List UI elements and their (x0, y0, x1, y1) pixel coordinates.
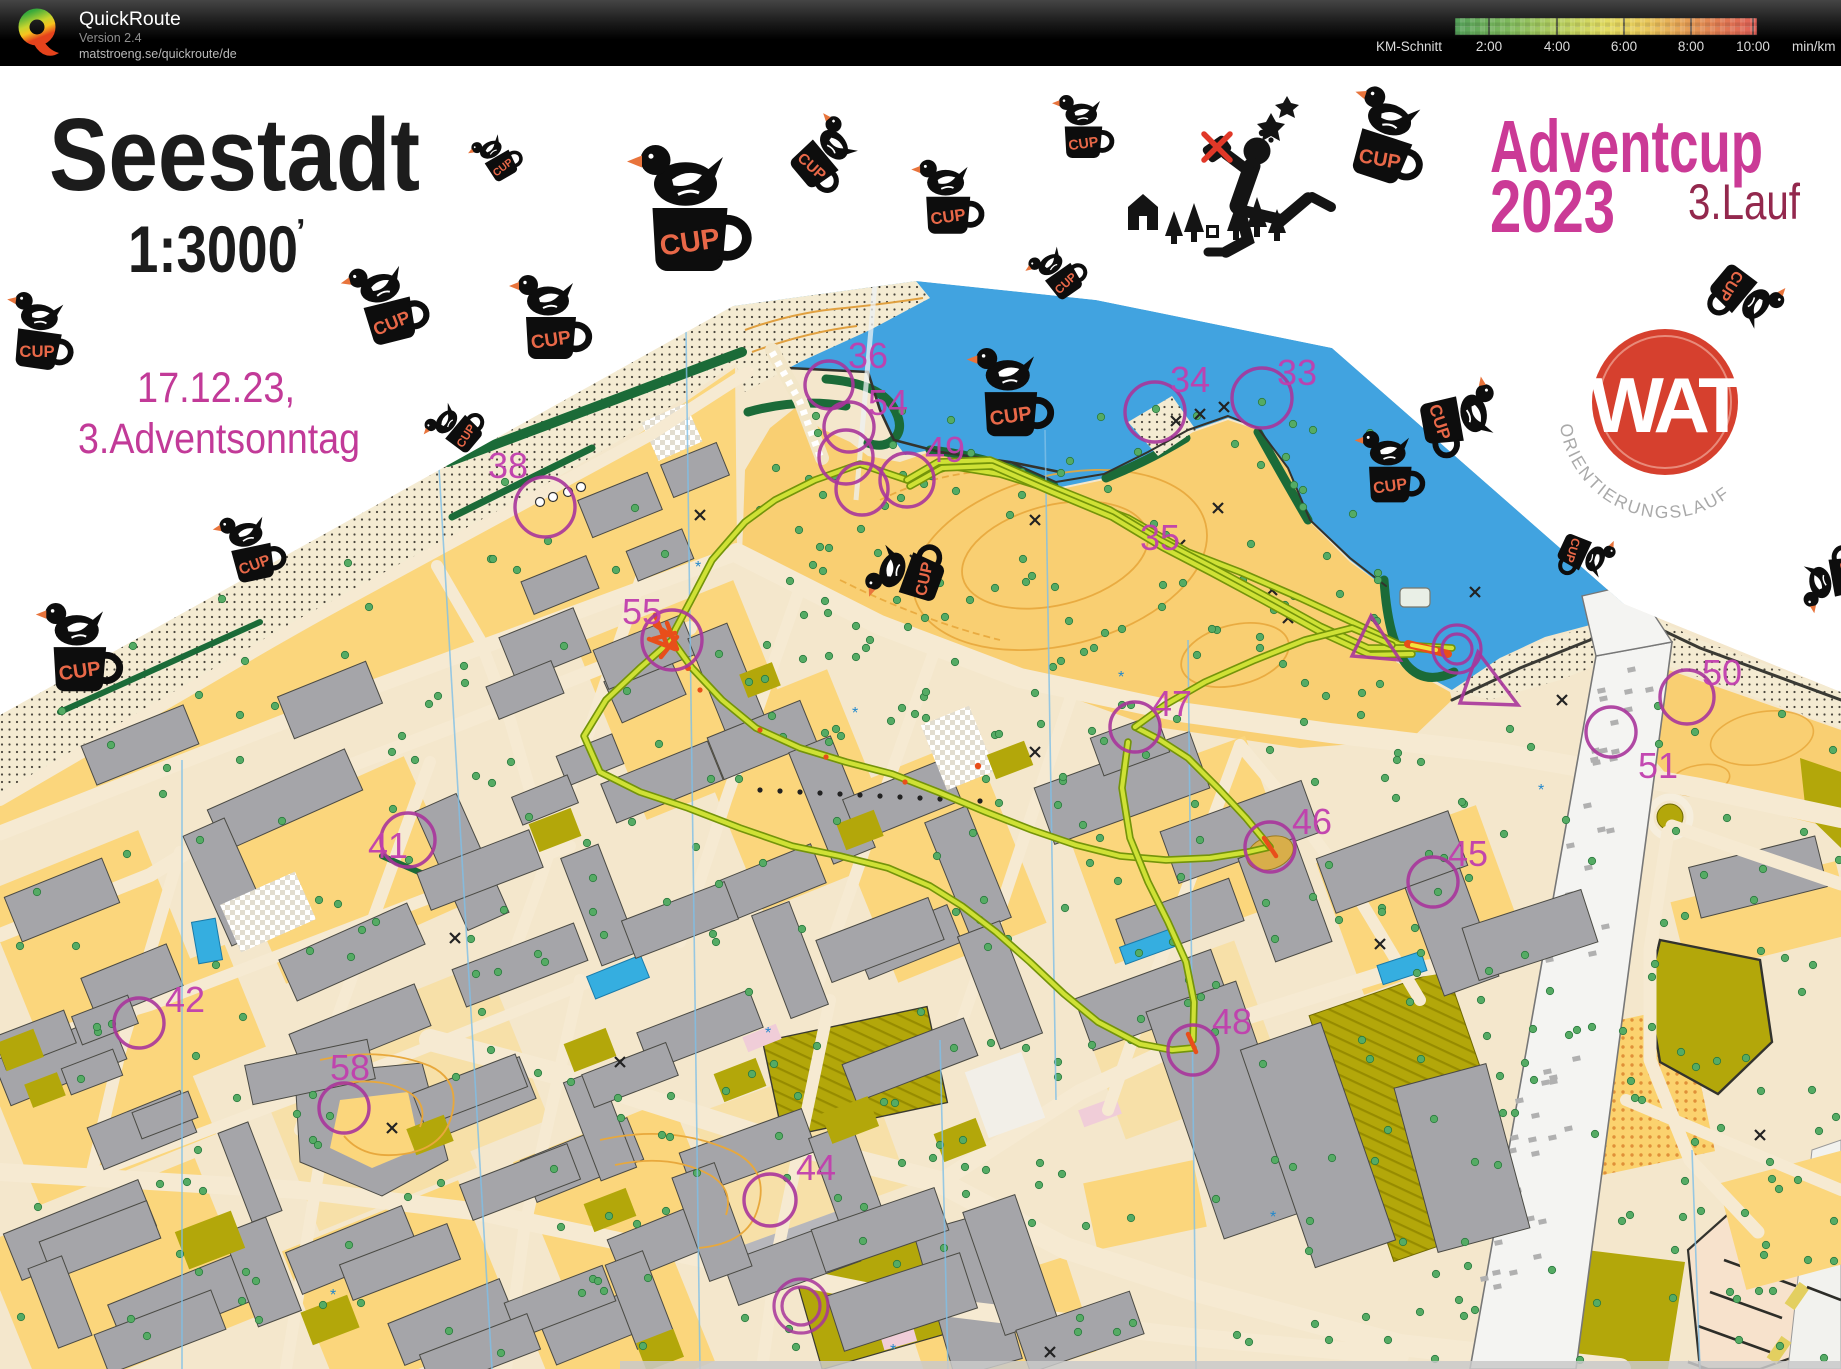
svg-text:4:00: 4:00 (1544, 39, 1570, 54)
svg-text:35: 35 (1140, 517, 1180, 558)
svg-text:49: 49 (925, 429, 965, 470)
svg-text:*: * (765, 1025, 771, 1042)
svg-text:*: * (1118, 669, 1124, 686)
svg-text:6:00: 6:00 (1611, 39, 1637, 54)
svg-text:41: 41 (368, 825, 408, 866)
svg-text:51: 51 (1638, 745, 1678, 786)
svg-text:45: 45 (1448, 833, 1488, 874)
svg-text:17.12.23,: 17.12.23, (137, 364, 295, 412)
svg-text:min/km: min/km (1792, 39, 1836, 54)
svg-text:2023: 2023 (1490, 165, 1615, 248)
svg-text:10:00: 10:00 (1736, 39, 1770, 54)
svg-text:54: 54 (868, 382, 908, 423)
svg-text:*: * (1538, 782, 1544, 799)
svg-text:34: 34 (1170, 359, 1210, 400)
svg-text:46: 46 (1292, 801, 1332, 842)
svg-text:38: 38 (488, 445, 528, 486)
svg-text:42: 42 (165, 979, 205, 1020)
svg-text:*: * (890, 1342, 896, 1359)
svg-text:1:3000: 1:3000 (128, 212, 298, 286)
svg-text:*: * (695, 559, 701, 576)
svg-text:2:00: 2:00 (1476, 39, 1502, 54)
svg-text:44: 44 (796, 1147, 836, 1188)
svg-text:*: * (330, 1287, 336, 1304)
svg-text:QuickRoute: QuickRoute (79, 8, 181, 30)
svg-text:*: * (852, 705, 858, 722)
svg-text:33: 33 (1277, 352, 1317, 393)
svg-text:50: 50 (1702, 652, 1742, 693)
svg-text:55: 55 (622, 591, 662, 632)
svg-text:3.Lauf: 3.Lauf (1688, 174, 1800, 230)
svg-text:matstroeng.se/quickroute/de: matstroeng.se/quickroute/de (79, 47, 237, 61)
svg-text:3.Adventsonntag: 3.Adventsonntag (78, 415, 360, 463)
svg-text:48: 48 (1212, 1001, 1252, 1042)
svg-text:47: 47 (1152, 683, 1192, 724)
svg-text:36: 36 (848, 335, 888, 376)
svg-text:KM-Schnitt: KM-Schnitt (1376, 39, 1442, 54)
svg-text:WAT: WAT (1590, 361, 1745, 449)
svg-text:8:00: 8:00 (1678, 39, 1704, 54)
svg-text:*: * (1270, 1209, 1276, 1226)
svg-text:Version 2.4: Version 2.4 (79, 31, 142, 45)
svg-text:ʼ: ʼ (296, 213, 305, 251)
svg-text:Seestadt: Seestadt (49, 97, 420, 212)
svg-text:58: 58 (330, 1047, 370, 1088)
